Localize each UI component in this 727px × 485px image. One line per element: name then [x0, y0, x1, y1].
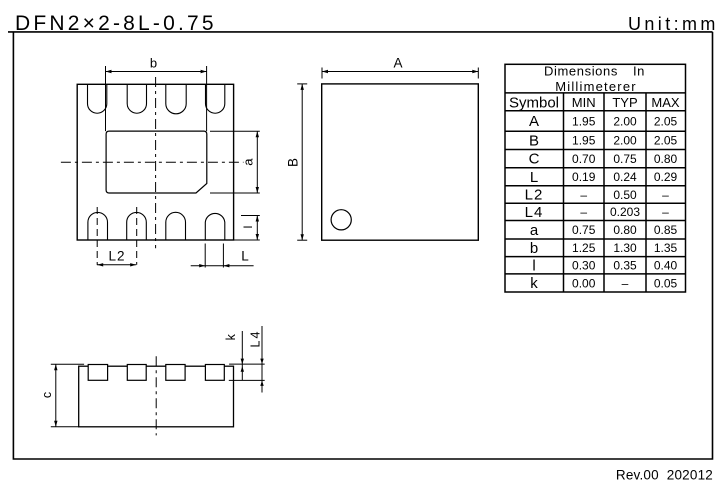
- svg-text:A: A: [529, 113, 539, 130]
- svg-text:L4: L4: [249, 330, 263, 348]
- svg-text:b: b: [150, 56, 157, 71]
- svg-text:–: –: [580, 188, 587, 202]
- svg-text:0.30: 0.30: [572, 259, 596, 273]
- svg-text:Unit:mm: Unit:mm: [628, 14, 719, 34]
- svg-text:Symbol: Symbol: [509, 95, 559, 112]
- svg-text:B: B: [529, 132, 539, 149]
- svg-text:L2: L2: [525, 187, 544, 204]
- svg-text:In: In: [633, 64, 645, 79]
- svg-text:k: k: [530, 275, 538, 292]
- svg-text:l: l: [532, 257, 535, 274]
- svg-text:0.75: 0.75: [572, 223, 596, 237]
- svg-text:L2: L2: [108, 249, 125, 264]
- svg-text:0.24: 0.24: [613, 170, 637, 184]
- svg-text:MIN: MIN: [572, 95, 596, 110]
- svg-text:0.70: 0.70: [572, 152, 596, 166]
- svg-text:b: b: [530, 240, 538, 257]
- svg-text:0.203: 0.203: [610, 205, 640, 219]
- svg-text:Millimeterer: Millimeterer: [555, 79, 637, 94]
- svg-text:MAX: MAX: [651, 95, 680, 110]
- svg-text:–: –: [662, 205, 669, 219]
- svg-text:1.35: 1.35: [654, 241, 678, 255]
- svg-text:0.85: 0.85: [654, 223, 678, 237]
- svg-text:a: a: [240, 158, 255, 166]
- svg-text:1.95: 1.95: [572, 134, 596, 148]
- svg-text:0.00: 0.00: [572, 276, 596, 290]
- svg-text:TYP: TYP: [612, 95, 637, 110]
- svg-text:B: B: [286, 158, 301, 167]
- svg-text:0.05: 0.05: [654, 276, 678, 290]
- svg-text:k: k: [224, 333, 238, 340]
- svg-text:L4: L4: [525, 204, 544, 221]
- svg-text:Dimensions: Dimensions: [544, 64, 618, 79]
- svg-text:2.00: 2.00: [613, 114, 637, 128]
- svg-text:0.75: 0.75: [613, 152, 637, 166]
- svg-text:–: –: [622, 276, 629, 290]
- svg-text:2.05: 2.05: [654, 114, 678, 128]
- svg-text:2.05: 2.05: [654, 134, 678, 148]
- svg-text:C: C: [529, 151, 540, 168]
- svg-text:Rev.00 202012: Rev.00 202012: [616, 468, 713, 483]
- svg-text:a: a: [530, 222, 539, 239]
- svg-text:0.19: 0.19: [572, 170, 596, 184]
- svg-text:1.25: 1.25: [572, 241, 596, 255]
- svg-text:0.35: 0.35: [613, 259, 637, 273]
- svg-text:0.80: 0.80: [613, 223, 637, 237]
- svg-text:1.30: 1.30: [613, 241, 637, 255]
- svg-text:L: L: [530, 169, 538, 186]
- svg-text:0.29: 0.29: [654, 170, 678, 184]
- svg-text:l: l: [241, 226, 255, 229]
- svg-text:0.40: 0.40: [654, 259, 678, 273]
- svg-text:1.95: 1.95: [572, 114, 596, 128]
- svg-text:–: –: [580, 205, 587, 219]
- svg-text:c: c: [40, 392, 54, 398]
- svg-text:0.80: 0.80: [654, 152, 678, 166]
- svg-text:L: L: [241, 249, 249, 264]
- svg-text:0.50: 0.50: [613, 188, 637, 202]
- svg-text:2.00: 2.00: [613, 134, 637, 148]
- svg-text:A: A: [393, 56, 402, 71]
- svg-text:–: –: [662, 188, 669, 202]
